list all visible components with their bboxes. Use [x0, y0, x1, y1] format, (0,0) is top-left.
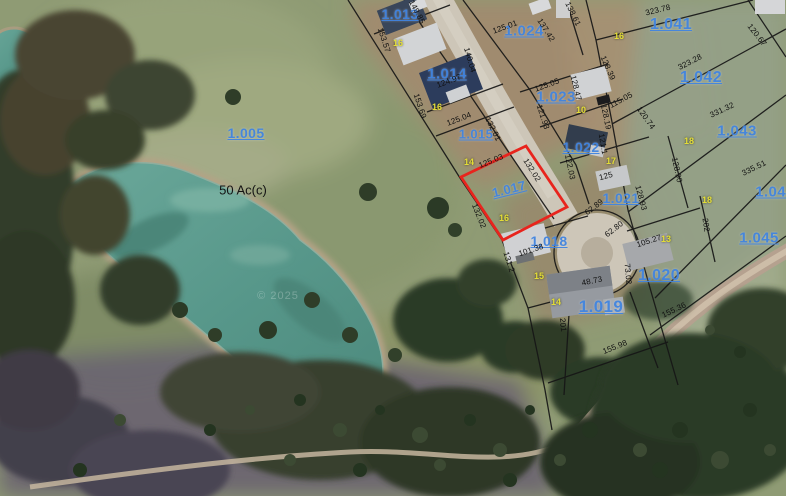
dimension-label: 120.67	[746, 22, 769, 48]
dimension-label: 155.36	[660, 300, 687, 319]
parcel-number-label[interactable]: 1.005	[227, 125, 264, 141]
dimension-label: 122.03	[563, 154, 577, 181]
dimension-label: 153.57	[376, 26, 392, 53]
dimension-label: 62.80	[603, 219, 625, 239]
dimension-label: 48.73	[581, 274, 603, 287]
lot-number-label: 14	[551, 297, 561, 307]
parcel-number-label[interactable]: 1.020	[638, 267, 680, 285]
lot-number-label: 16	[499, 213, 509, 223]
dimension-label: 201	[558, 318, 568, 333]
lot-number-label: 15	[534, 271, 544, 281]
dimension-label: 202	[701, 217, 712, 232]
parcel-number-label[interactable]: 1.041	[650, 16, 692, 34]
dimension-label: 128.93	[633, 184, 648, 211]
dimension-label: 155.98	[601, 338, 628, 356]
parcel-number-label[interactable]: 1.043	[717, 123, 757, 140]
copyright-watermark: © 2025	[257, 290, 299, 302]
dimension-label: 153.69	[412, 92, 428, 119]
dimension-label: 101.38	[517, 242, 544, 258]
parcel-number-label[interactable]: 1.044	[755, 184, 786, 201]
dimension-label: 105.27	[635, 233, 662, 249]
dimension-label: 335.51	[740, 158, 767, 177]
dimension-label: 125.03	[477, 152, 504, 170]
dimension-label: 73.02	[623, 263, 634, 285]
lot-number-label: 18	[684, 136, 694, 146]
lot-number-label: 18	[702, 195, 712, 205]
dimension-label: 138.61	[563, 0, 582, 27]
dimension-label: 125	[598, 170, 614, 182]
acreage-label: 50 Ac(c)	[219, 183, 267, 198]
dimension-label: 331.32	[708, 100, 735, 119]
parcel-number-label[interactable]: 1.045	[739, 230, 779, 247]
lot-number-label: 16	[393, 38, 403, 48]
parcel-number-label[interactable]: 1.019	[579, 297, 624, 317]
parcel-number-label[interactable]: 1.042	[680, 69, 722, 87]
parcel-number-label[interactable]: 1.017	[490, 178, 527, 201]
lot-number-label: 13	[661, 234, 671, 244]
lot-number-label: 10	[576, 105, 586, 115]
map-label-layer: 50 Ac(c) © 2025 1.0051.0131.0141.0151.01…	[0, 0, 786, 496]
lot-number-label: 17	[606, 156, 616, 166]
dimension-label: 128.39	[599, 54, 618, 81]
dimension-label: 131.2	[501, 251, 516, 274]
dimension-label: 120.74	[635, 105, 657, 131]
aerial-parcel-map[interactable]: 50 Ac(c) © 2025 1.0051.0131.0141.0151.01…	[0, 0, 786, 496]
dimension-label: 62.89	[583, 197, 605, 217]
lot-number-label: 16	[614, 31, 624, 41]
dimension-label: 128.90	[670, 157, 684, 184]
dimension-label: 115.05	[608, 90, 634, 110]
lot-number-label: 14	[464, 157, 474, 167]
parcel-number-label[interactable]: 1.022	[562, 139, 599, 155]
dimension-label: 125.04	[445, 110, 472, 128]
dimension-label: 132.02	[470, 202, 488, 229]
dimension-label: 121.93	[535, 103, 551, 130]
lot-number-label: 16	[432, 102, 442, 112]
